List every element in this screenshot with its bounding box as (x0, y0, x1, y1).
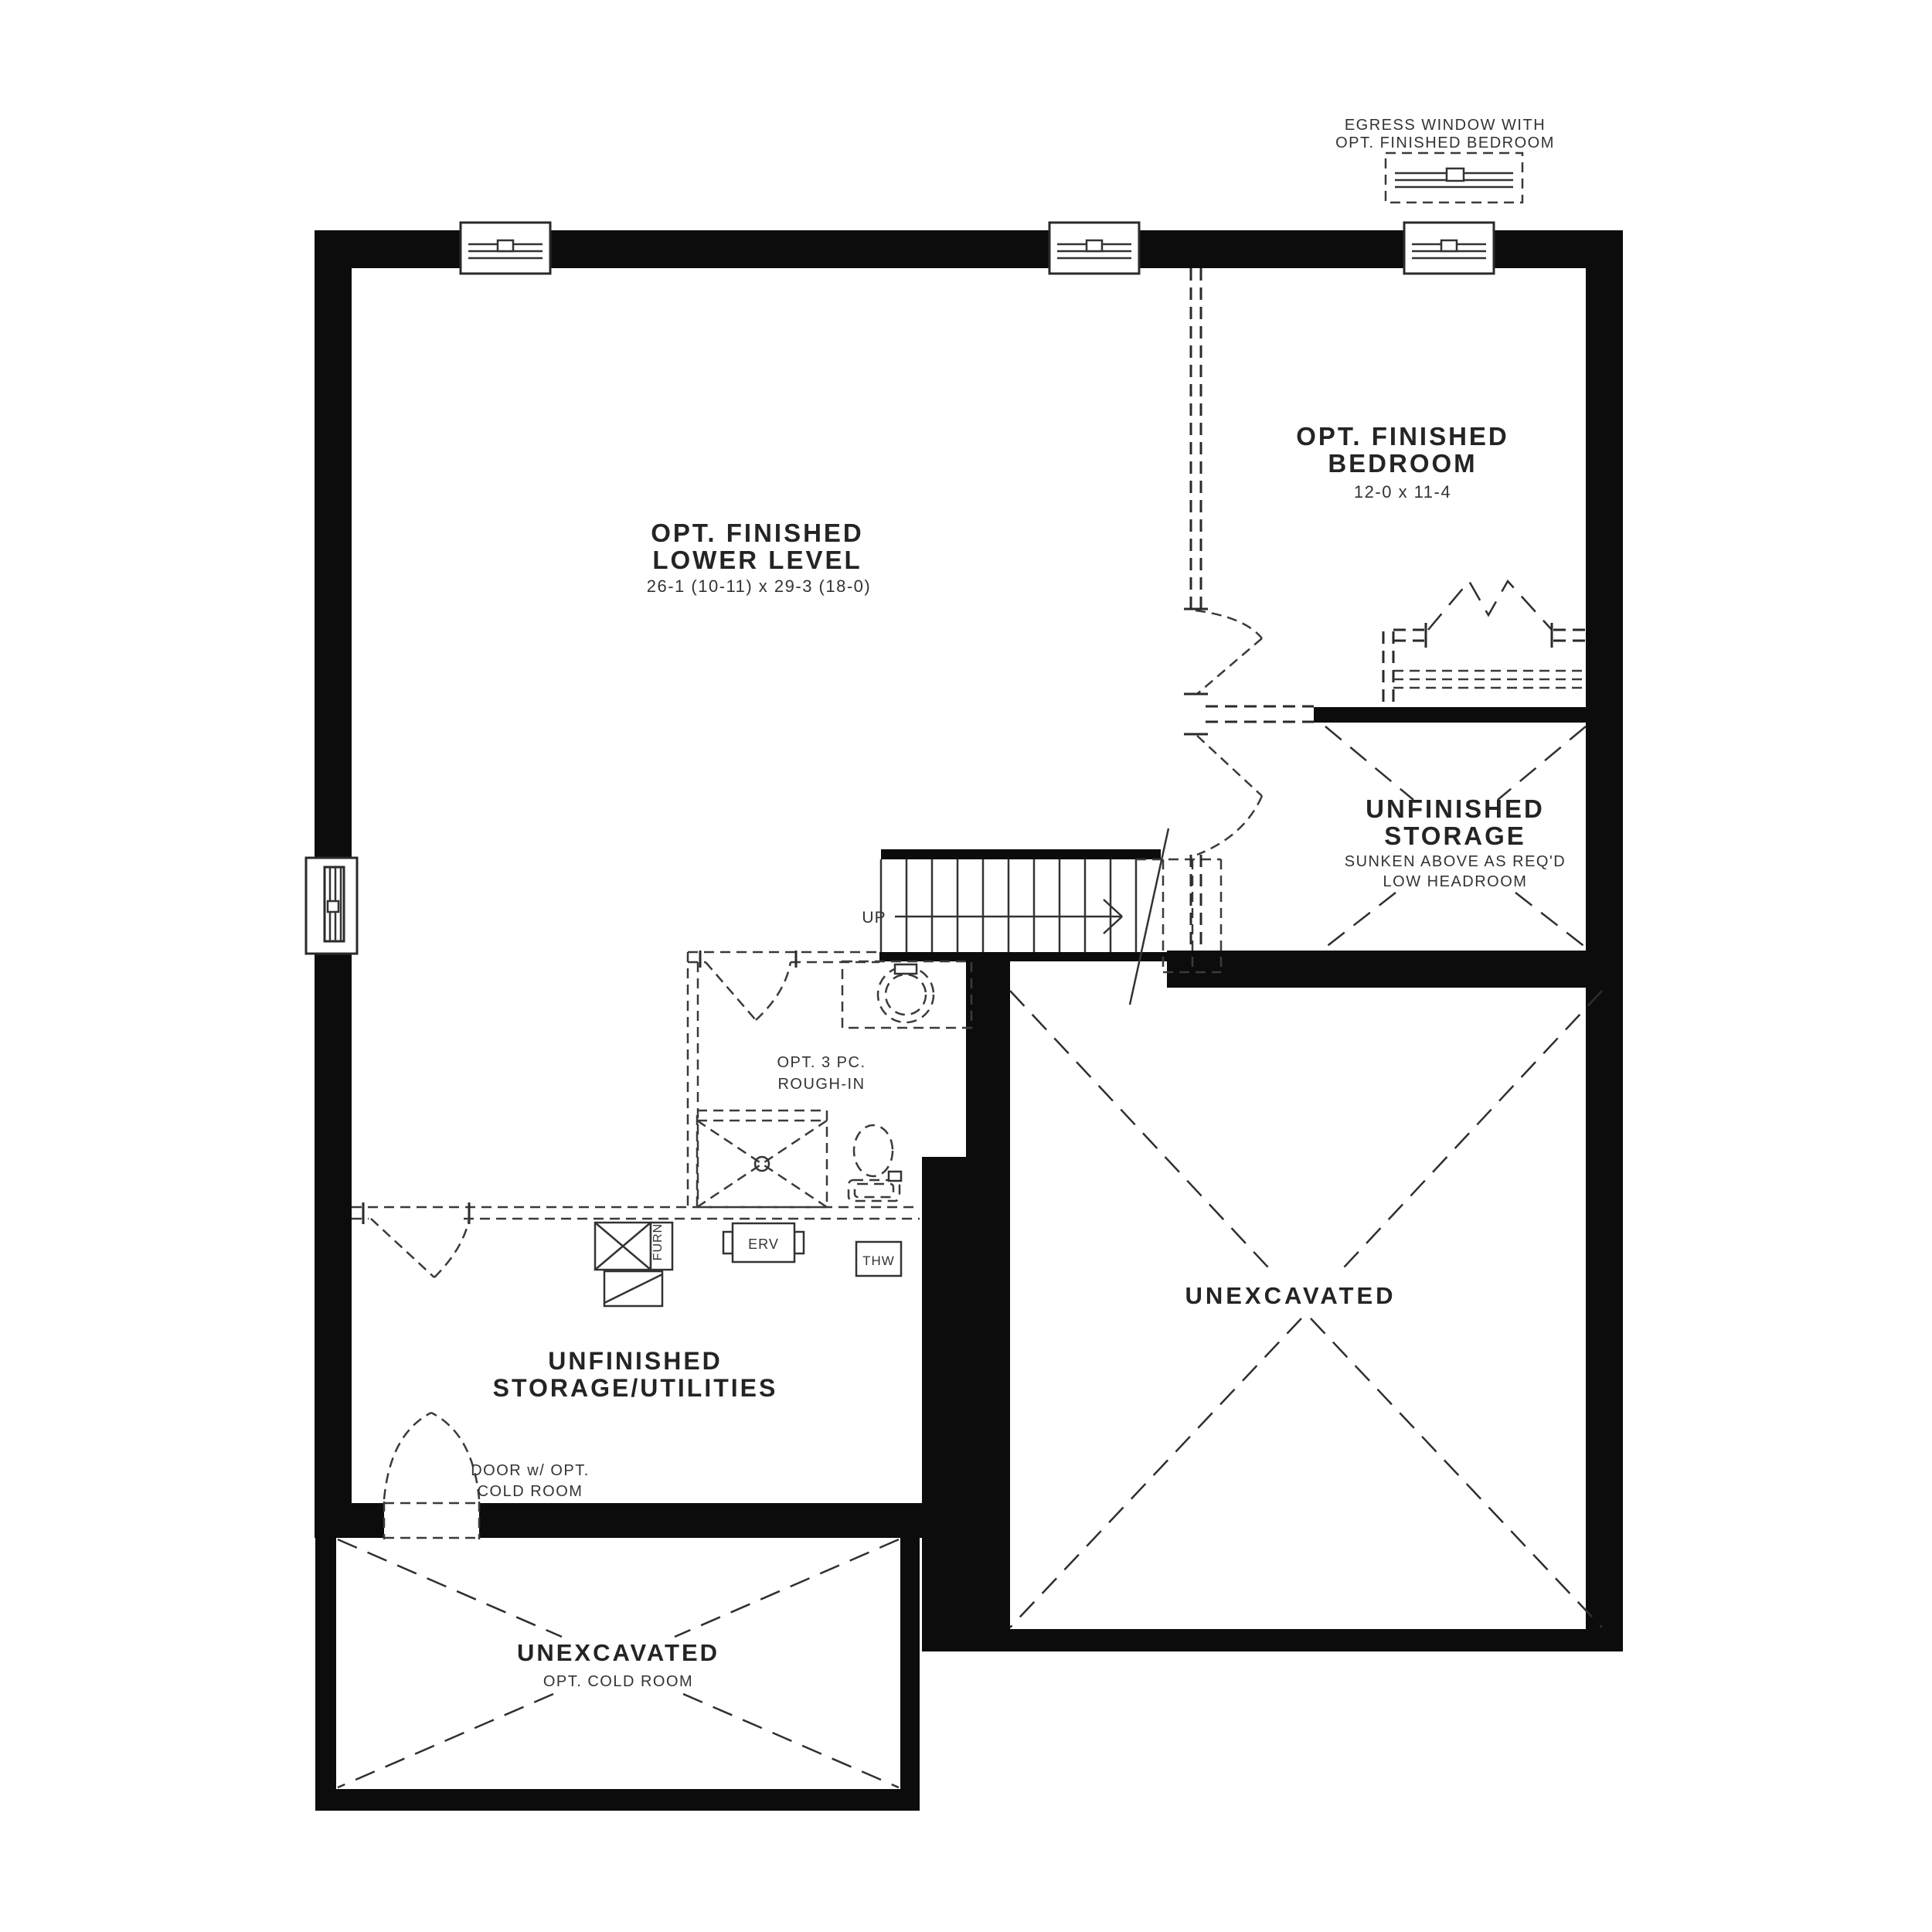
cold-room-label: UNEXCAVATED OPT. COLD ROOM (517, 1639, 719, 1690)
toilet-rough-in-icon (849, 1125, 901, 1201)
door-swing-icon-cold-room (384, 1413, 479, 1499)
lower-level-title-line2: LOWER LEVEL (652, 546, 862, 574)
erv-label: ERV (748, 1236, 779, 1252)
storage-title-line2: STORAGE (1384, 821, 1526, 850)
door-cold-room (384, 1413, 479, 1539)
rough-in-label-line1: OPT. 3 PC. (777, 1054, 866, 1071)
lower-level-label: OPT. FINISHED LOWER LEVEL 26-1 (10-11) x… (647, 519, 872, 596)
window-icon-top-3 (1404, 223, 1494, 274)
utilities-title-line1: UNFINISHED (548, 1347, 723, 1375)
closet-detail (1383, 581, 1586, 707)
door-swing-icon-bedroom-lower (1197, 736, 1262, 855)
storage-note-line1: SUNKEN ABOVE AS REQ'D (1345, 853, 1566, 870)
wall-coldroom-right (900, 1538, 920, 1811)
utilities-label: UNFINISHED STORAGE/UTILITIES (493, 1347, 778, 1402)
door-swing-icon-utility (371, 1219, 469, 1277)
wall-coldroom-bottom (315, 1789, 920, 1811)
closet-shelf-icon (1393, 671, 1586, 688)
bedroom-title-line2: BEDROOM (1328, 449, 1477, 478)
cold-room-note: OPT. COLD ROOM (543, 1673, 693, 1690)
unexcavated-right-label: UNEXCAVATED (1185, 1282, 1396, 1309)
storage-note-line2: LOW HEADROOM (1383, 873, 1528, 890)
lower-level-title-line1: OPT. FINISHED (651, 519, 864, 547)
stair-up-label: UP (862, 909, 886, 927)
bedroom-label: OPT. FINISHED BEDROOM 12-0 x 11-4 (1296, 422, 1509, 502)
utilities-title-line2: STORAGE/UTILITIES (493, 1374, 778, 1402)
erv-icon: ERV (723, 1223, 804, 1262)
egress-window-well-icon (1386, 153, 1522, 202)
wall-bottom-right-of-door (479, 1503, 923, 1538)
cold-room-door-note-line2: COLD ROOM (478, 1483, 583, 1500)
rough-in-label-line2: ROUGH-IN (777, 1076, 865, 1093)
furnace-label: FURN (651, 1223, 665, 1260)
egress-note-line2: OPT. FINISHED BEDROOM (1335, 134, 1555, 151)
egress-note-line1: EGRESS WINDOW WITH (1345, 117, 1546, 134)
laundry-tub-icon (842, 961, 971, 1028)
cold-room-title: UNEXCAVATED (517, 1639, 719, 1666)
wall-stair-guard (881, 849, 1161, 859)
storage-title-line1: UNFINISHED (1366, 794, 1545, 823)
closet-rod-icon (1428, 581, 1552, 630)
bedroom-dims: 12-0 x 11-4 (1354, 482, 1451, 502)
unexcavated-right-x-pattern (1010, 991, 1602, 1628)
window-icon-top-2 (1049, 223, 1139, 274)
wall-right (1586, 230, 1623, 1651)
stair-treads (881, 859, 1136, 952)
shower-rough-in-icon (697, 1111, 827, 1207)
wall-bottom-left-of-door (315, 1503, 384, 1538)
thw-label: THW (862, 1253, 895, 1268)
bedroom-title-line1: OPT. FINISHED (1296, 422, 1509, 451)
furnace-icon: FURN (595, 1223, 672, 1306)
thw-icon: THW (856, 1242, 901, 1276)
window-icon-left (306, 858, 357, 954)
wall-bedroom-storage-divider (1314, 707, 1586, 723)
lower-level-dims: 26-1 (10-11) x 29-3 (18-0) (647, 577, 872, 596)
window-icon-top-1 (461, 223, 550, 274)
wall-under-stair (879, 952, 1167, 961)
bedroom-optional-partition (1184, 268, 1314, 951)
wall-coldroom-left (315, 1538, 336, 1811)
wall-unexcavated-left-upper (966, 952, 1010, 1157)
wall-unexcavated-left-lower (922, 1157, 1010, 1651)
cold-room-door-note-line1: DOOR w/ OPT. (471, 1462, 590, 1479)
wall-unexcavated-bottom (922, 1629, 1623, 1651)
door-swing-icon-bedroom-upper (1196, 611, 1262, 694)
storage-label: UNFINISHED STORAGE SUNKEN ABOVE AS REQ'D… (1345, 794, 1566, 890)
floor-plan: EGRESS WINDOW WITH OPT. FINISHED BEDROOM (0, 0, 1932, 1932)
wall-storage-unexcavated (1167, 951, 1602, 988)
door-swing-icon-rough-in (700, 951, 796, 1020)
